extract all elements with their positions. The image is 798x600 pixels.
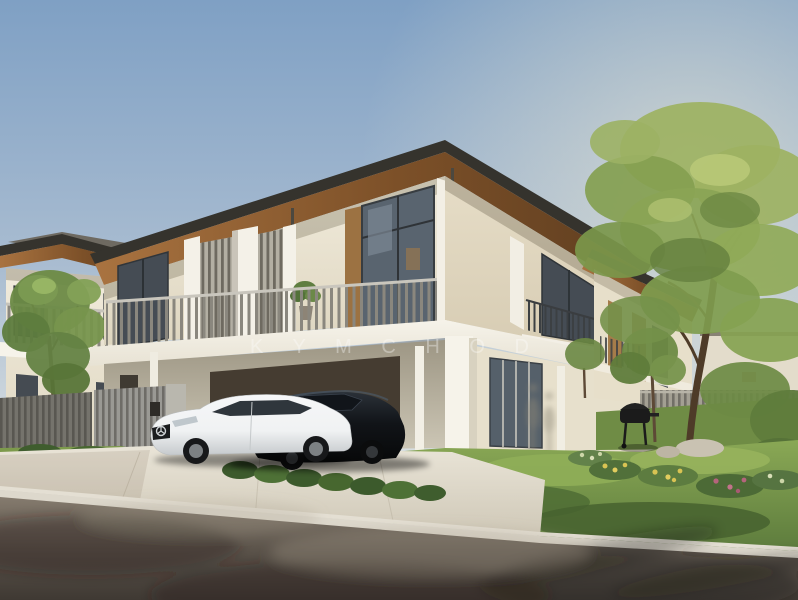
- architectural-render: K Y M C H O D: [0, 0, 798, 600]
- porch-column: [415, 346, 424, 450]
- gate-intercom: [150, 402, 160, 416]
- render-scene: K Y M C H O D: [0, 0, 798, 600]
- porch-column: [557, 366, 565, 462]
